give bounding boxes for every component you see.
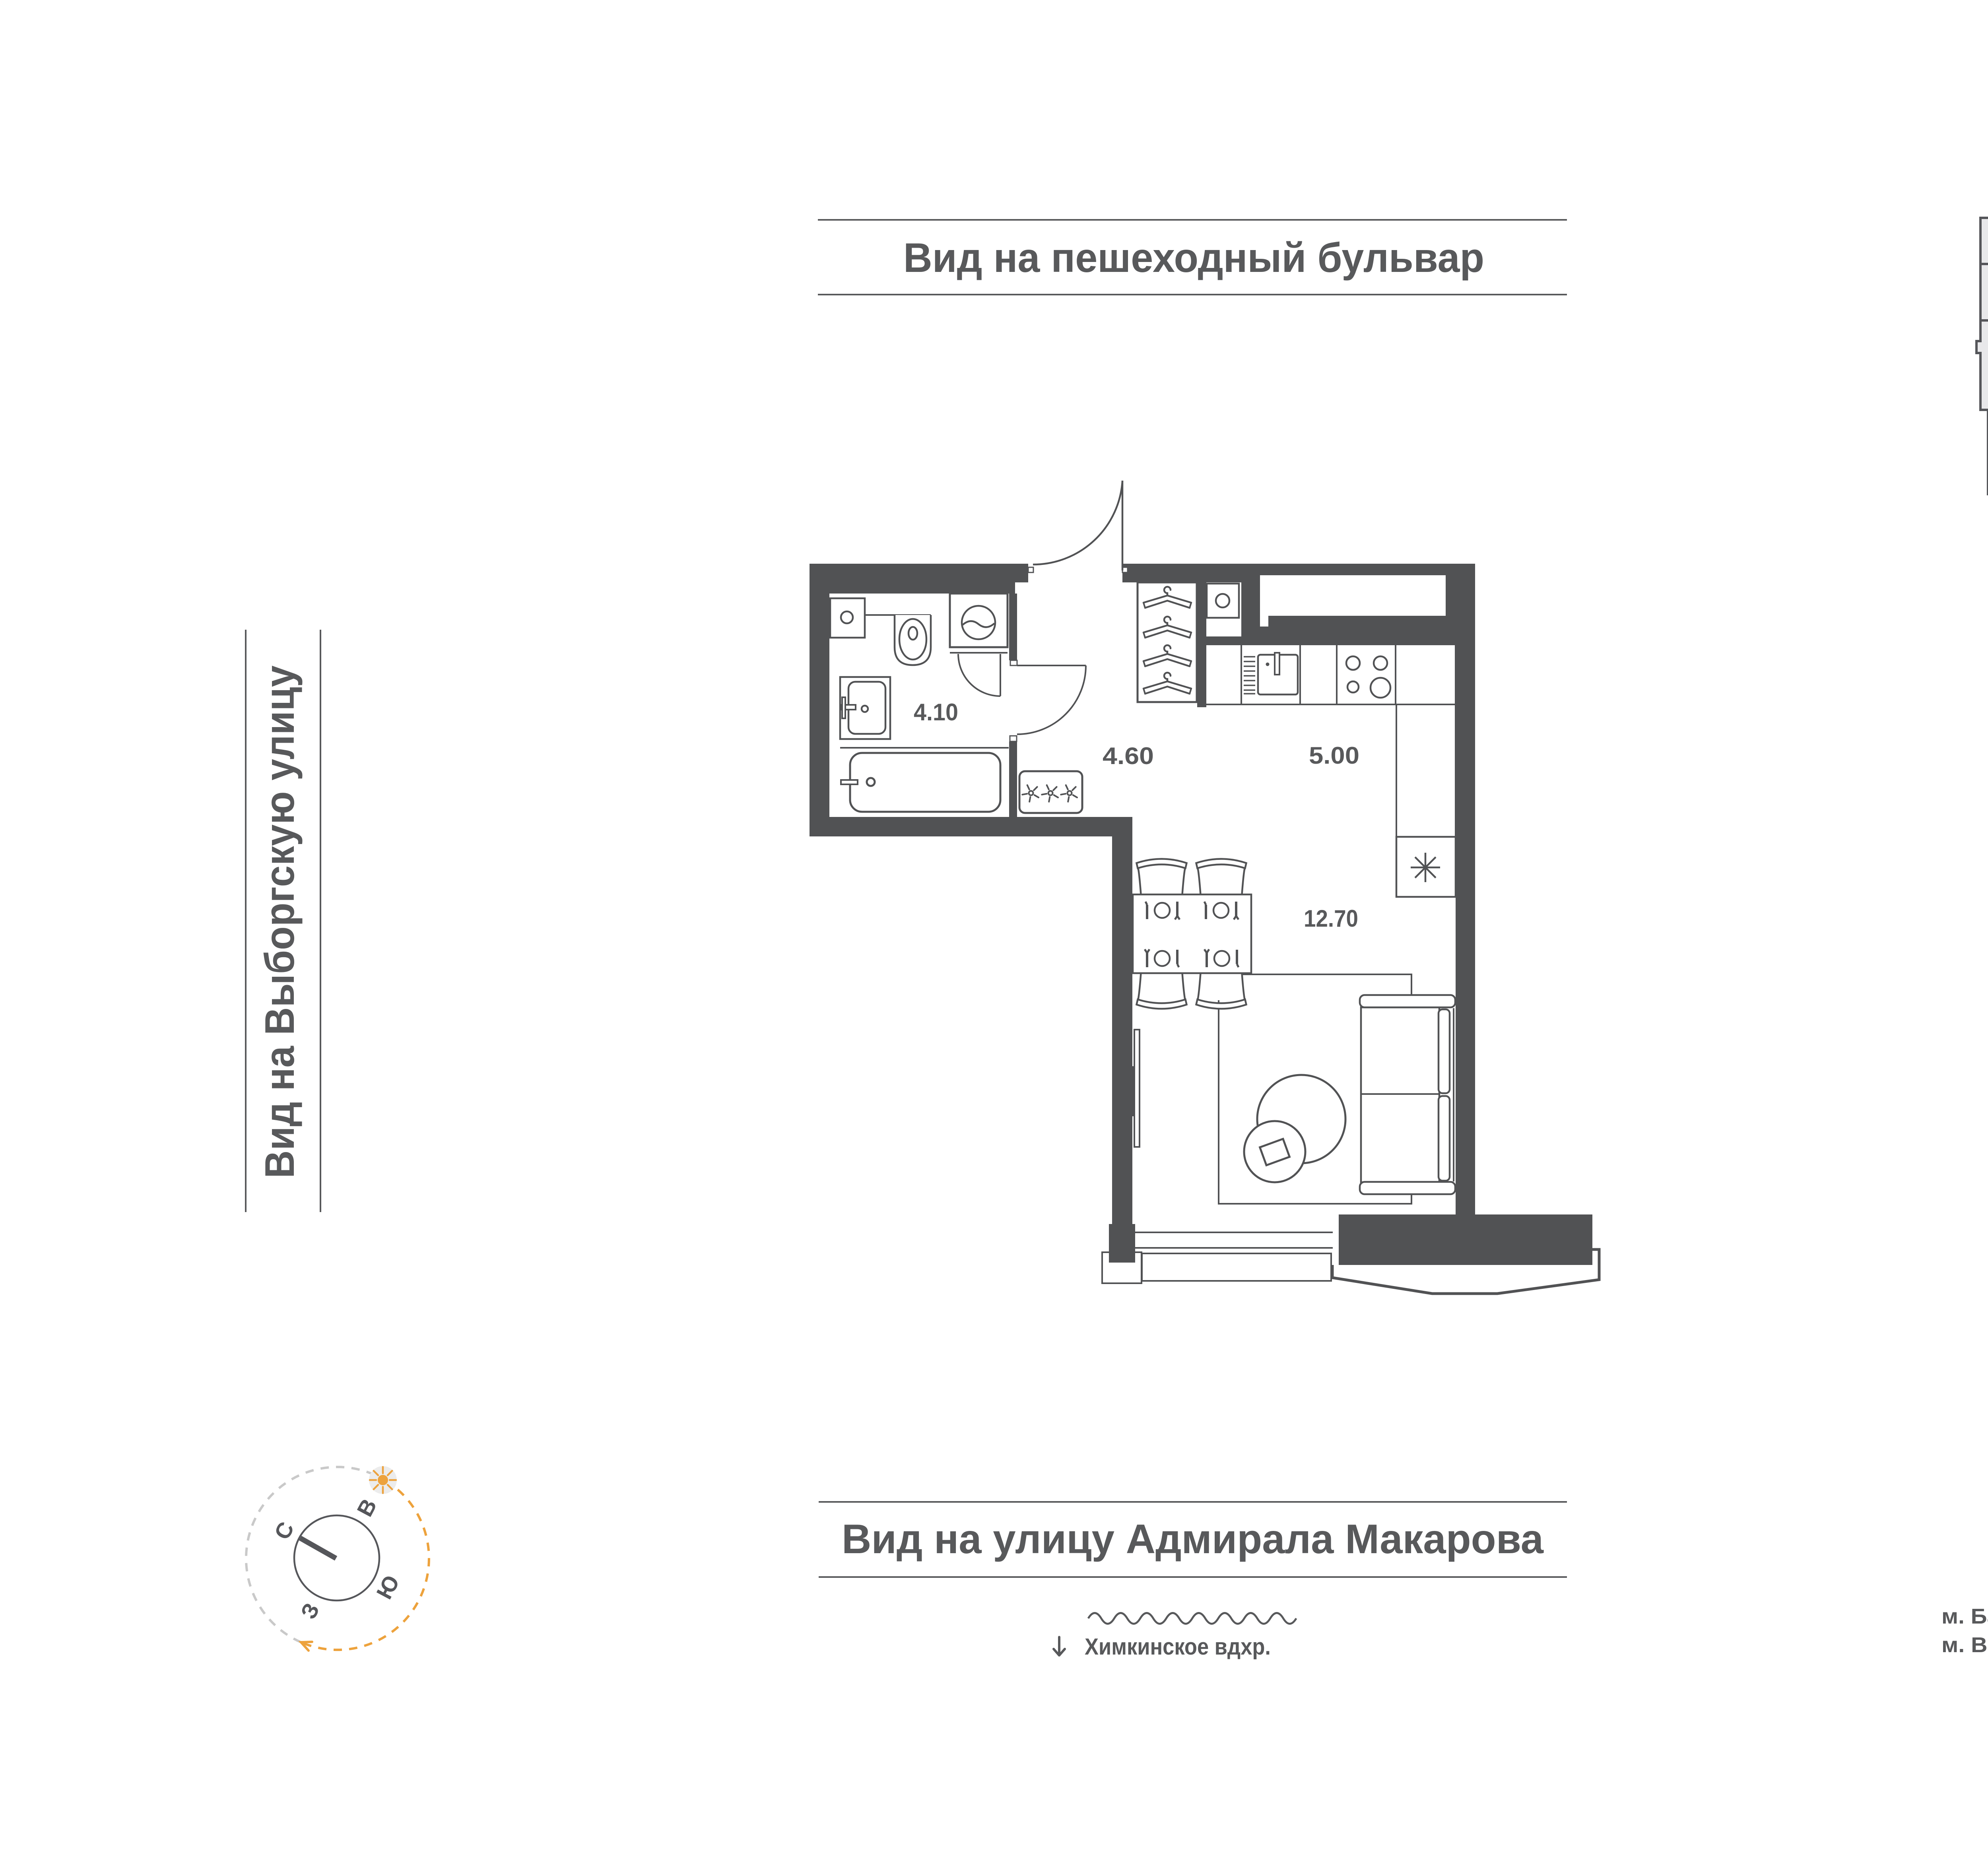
svg-text:Химкинское вдхр.: Химкинское вдхр. [1085,1634,1271,1660]
svg-text:В: В [352,1495,382,1521]
svg-text:З: З [295,1599,324,1623]
svg-text:м. Балтийская: м. Балтийская [1941,1604,1988,1628]
svg-text:м. Войковская: м. Войковская [1941,1633,1988,1657]
svg-text:С: С [269,1518,299,1544]
svg-text:Вид на Выборгскую улицу: Вид на Выборгскую улицу [257,665,303,1178]
svg-text:Вид на пешеходный бульвар: Вид на пешеходный бульвар [903,235,1484,281]
svg-text:Вид на улицу Адмирала Макарова: Вид на улицу Адмирала Макарова [842,1516,1544,1562]
svg-text:5.00: 5.00 [1309,742,1359,769]
svg-text:4.60: 4.60 [1103,743,1154,769]
svg-text:4.10: 4.10 [914,699,958,726]
svg-text:12.70: 12.70 [1304,905,1358,932]
